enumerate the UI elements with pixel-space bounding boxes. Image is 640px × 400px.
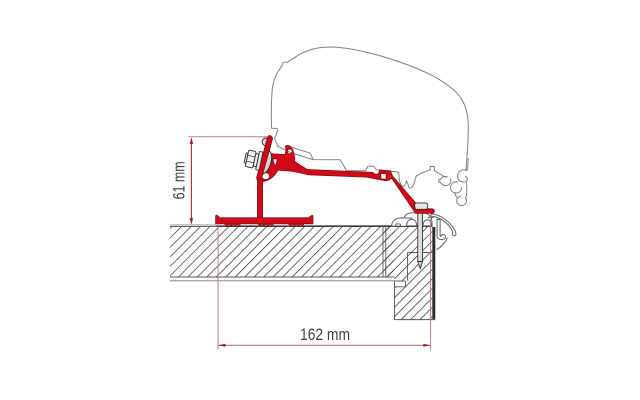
svg-text:162 mm: 162 mm bbox=[300, 326, 350, 344]
svg-text:61 mm: 61 mm bbox=[170, 161, 189, 199]
